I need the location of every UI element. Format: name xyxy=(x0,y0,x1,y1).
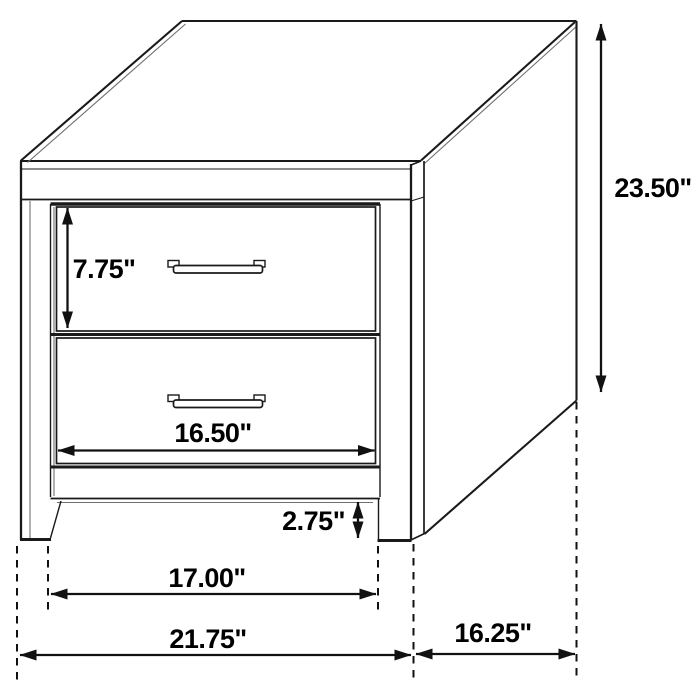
base-clearance-label: 2.75" xyxy=(282,506,345,536)
nightstand-dimension-diagram: 7.75" 23.50" 16.50" 2.75" 17.00" 21.75" … xyxy=(0,0,700,700)
overall-height-label: 23.50" xyxy=(614,173,691,203)
overall-width-label: 21.75" xyxy=(169,624,246,654)
handle-bar xyxy=(174,266,263,274)
drawer-width-label: 16.50" xyxy=(174,418,251,448)
depth-label: 16.25" xyxy=(454,618,531,648)
handle-bar xyxy=(174,400,263,408)
drawer-height-label: 7.75" xyxy=(73,254,136,284)
inner-width-label: 17.00" xyxy=(168,563,245,593)
diagram-canvas: 7.75" 23.50" 16.50" 2.75" 17.00" 21.75" … xyxy=(0,0,700,700)
